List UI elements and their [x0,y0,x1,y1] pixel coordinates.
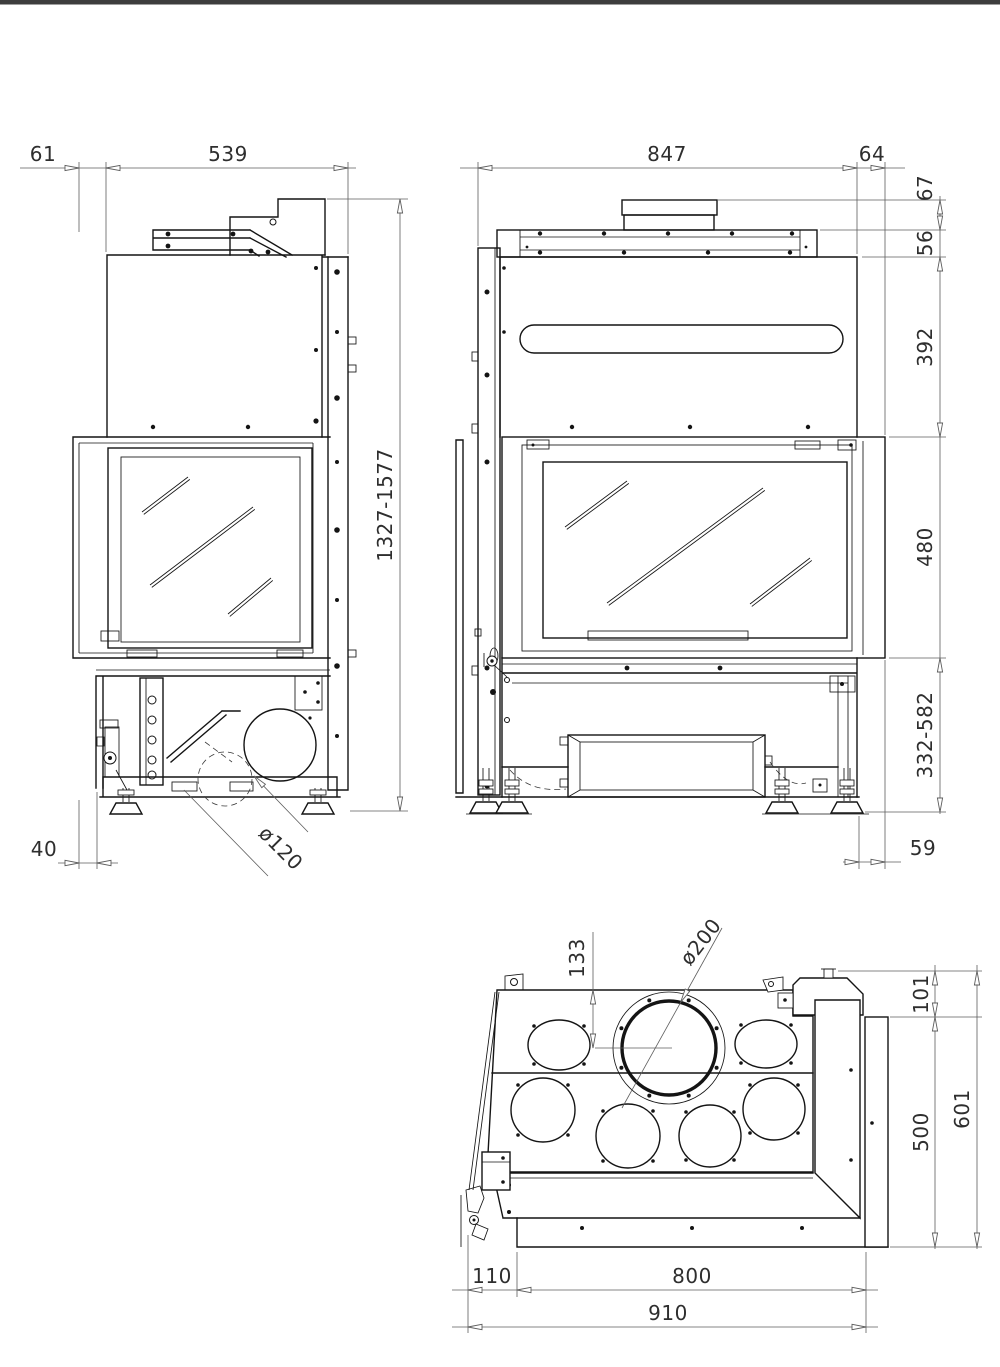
top-right-strip [865,1017,888,1247]
dim-side-front-clearance: 40 [31,837,57,861]
dim-side-rear-offset: 61 [30,142,56,166]
dim-side-overall-height: 1327-1577 [373,448,397,562]
side-front-fascia [328,257,356,790]
side-door-hinge-pin [101,631,119,641]
side-base-section [96,670,340,814]
front-glass-door [456,437,885,793]
top-view: 133 ø200 101 500 601 110 800 910 [452,914,982,1333]
top-plate [469,974,813,1190]
drawing-page: 61 539 1327-1577 40 ø120 [0,0,1000,1367]
front-glass-shine [565,481,812,606]
front-view: 847 64 67 56 392 480 332-582 59 [456,142,946,869]
side-adjustable-feet [110,788,334,814]
side-duct-hidden-circle [198,752,252,806]
dim-side-depth: 539 [208,142,248,166]
front-latch-hardware [484,653,507,677]
dim-top-body-width: 800 [672,1264,712,1288]
front-flue-stub [622,200,717,230]
dim-front-width: 847 [647,142,687,166]
front-upper-body [500,257,857,437]
dim-top-overall-depth: 601 [950,1089,974,1129]
top-angled-panel [815,1000,860,1218]
side-glass-shine [142,477,273,616]
side-glass-door [73,437,330,658]
top-latch-hardware [461,1186,488,1247]
dim-front-right-clearance: 59 [910,836,936,860]
dim-front-rail-height: 56 [913,230,937,256]
dim-front-stub-height: 67 [913,175,937,201]
dim-front-door-height: 480 [913,527,937,567]
dim-top-rear-step: 101 [909,974,933,1014]
fireplace-dimension-drawing: 61 539 1327-1577 40 ø120 [0,0,1000,1367]
top-right-structures [763,969,888,1247]
front-top-rail [497,230,817,257]
side-view: 61 539 1327-1577 40 ø120 [20,142,408,876]
side-latch-hardware [97,720,127,790]
dim-top-overall-width: 910 [648,1301,688,1325]
side-baffle [167,711,240,762]
top-view-dimensions: 133 ø200 101 500 601 110 800 910 [452,914,982,1333]
dim-side-duct-diameter: ø120 [254,821,308,875]
side-corner-bracket [295,676,322,710]
top-flue-collar [595,992,725,1104]
dim-front-side-return: 64 [859,142,885,166]
front-adjustable-legs [466,768,869,814]
dim-top-body-depth: 500 [909,1112,933,1152]
top-step-box [482,1152,510,1190]
front-air-slot [520,325,843,353]
dim-top-flue-offset: 133 [565,938,589,978]
dim-front-base-height-range: 332-582 [913,691,937,778]
side-blower-housing [244,709,316,781]
dim-front-upper-body-height: 392 [913,327,937,367]
dim-top-left-offset: 110 [472,1264,512,1288]
dim-top-flue-diameter: ø200 [675,914,726,970]
top-bar [0,0,1000,5]
side-top-bracket [153,199,325,257]
front-left-flange [472,248,510,795]
side-view-dimensions: 61 539 1327-1577 40 ø120 [20,142,408,876]
front-view-dimensions: 847 64 67 56 392 480 332-582 59 [460,142,946,869]
side-perforated-strut [140,678,163,785]
front-glass-pane [543,462,847,638]
front-base-section [456,653,869,814]
front-ash-drawer [560,735,772,797]
side-body [107,255,348,437]
